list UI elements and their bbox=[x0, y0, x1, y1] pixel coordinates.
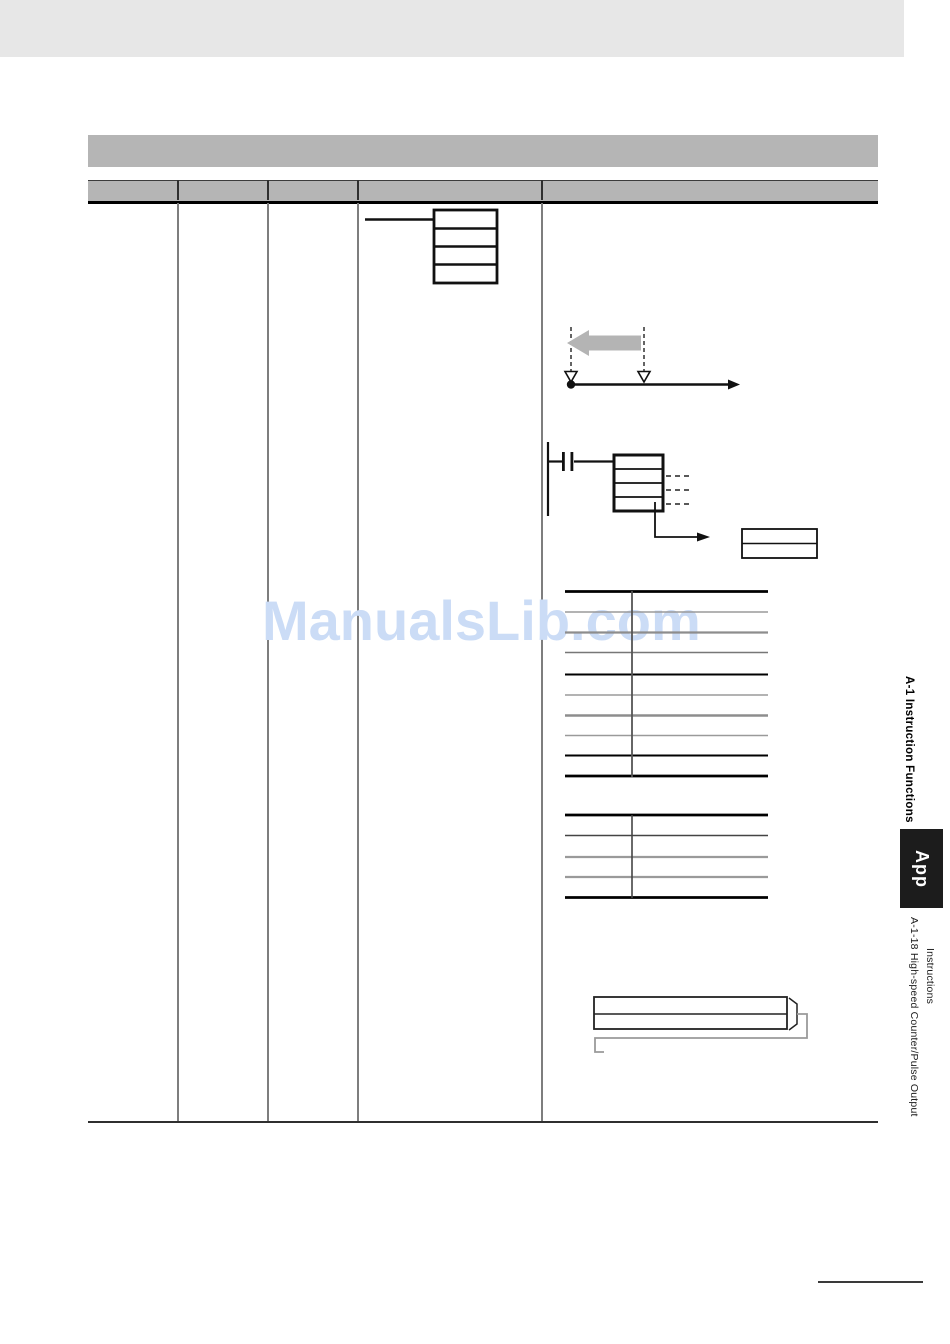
data-words-diagram bbox=[594, 997, 807, 1052]
left-gray-arrow-icon bbox=[567, 330, 641, 356]
range-arrow-diagram bbox=[565, 327, 740, 390]
app-badge: App bbox=[900, 829, 943, 908]
app-badge-label: App bbox=[911, 850, 932, 888]
brace-icon bbox=[789, 998, 797, 1030]
footer-rule bbox=[818, 1281, 923, 1283]
instruction-block-diagram bbox=[365, 210, 497, 283]
normally-open-contact-icon bbox=[562, 452, 565, 471]
ladder-diagram bbox=[548, 442, 817, 558]
sidebar-section-tab: A-1 Instruction Functions bbox=[903, 676, 915, 821]
parameter-table-2 bbox=[565, 815, 768, 898]
sidebar-subsection-line2: Instructions bbox=[924, 948, 936, 1004]
manual-page: ManualsLib.com bbox=[0, 0, 950, 1344]
diagram-layer bbox=[0, 0, 950, 1344]
sidebar-subsection-line1: A-1-18 High-speed Counter/Pulse Output bbox=[908, 917, 920, 1117]
open-triangle-marker bbox=[638, 372, 650, 383]
parameter-table-1 bbox=[565, 591, 768, 777]
